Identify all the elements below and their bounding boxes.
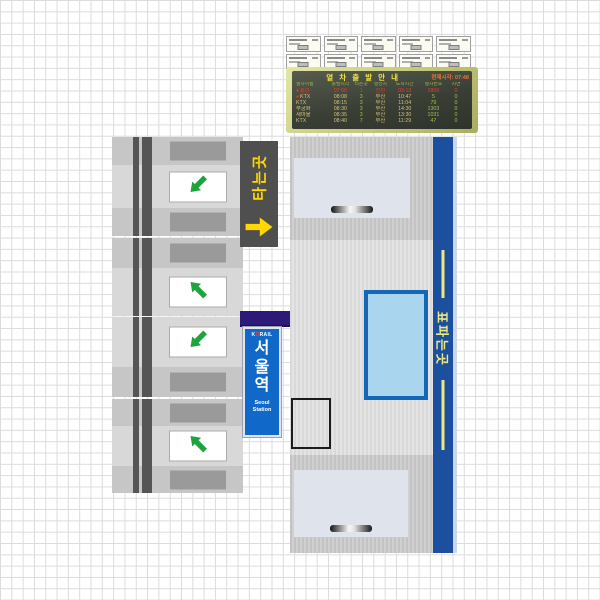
- banner-rule-top: [442, 250, 445, 298]
- right-arrow-icon: [244, 215, 274, 239]
- arrow-up-left-icon: [186, 278, 210, 307]
- outlined-booth: [291, 398, 331, 449]
- board-cell-name: KTX: [295, 118, 327, 124]
- ticket-office-window: [364, 290, 428, 400]
- gate-slot: [170, 470, 226, 489]
- station-name-label: 서울역: [252, 340, 272, 396]
- gate-slot: [170, 244, 226, 263]
- gate-rail-stripe: [142, 137, 152, 236]
- gate-lane-band: [112, 268, 243, 316]
- ticket-card-wall: [286, 36, 471, 69]
- gate-arrow-panel: [169, 327, 227, 358]
- kiosk-top: [294, 158, 410, 218]
- board-cell-train_no: 47: [418, 118, 449, 124]
- fare-gates: [112, 137, 243, 493]
- departure-board: 열 차 출 발 안 내 현재시각: 07:48 열차이름출발시각타는곳행선지도착…: [286, 67, 478, 133]
- boarding-sign: 타는곳: [240, 141, 278, 247]
- board-cell-dest: 부산: [369, 118, 392, 124]
- banner-text-wrap: 표파는곳: [433, 298, 453, 380]
- arrow-down-left-icon: [186, 172, 210, 201]
- departure-board-title: 열 차 출 발 안 내: [295, 72, 431, 83]
- arrow-up-left-icon: [186, 432, 210, 461]
- boarding-sign-label: 타는곳: [249, 153, 270, 200]
- station-name-english: Seoul Station: [249, 400, 275, 414]
- timetable-card: [399, 36, 434, 52]
- korail-rail: RAIL: [260, 332, 273, 338]
- kiosk-bottom: [294, 470, 408, 537]
- gate-rail-stripe: [133, 399, 139, 493]
- station-sign: KORAIL 서울역 Seoul Station: [243, 327, 281, 437]
- timetable-card: [286, 36, 321, 52]
- board-cell-delay: 0: [449, 118, 463, 124]
- departure-board-panel: 열 차 출 발 안 내 현재시각: 07:48 열차이름출발시각타는곳행선지도착…: [292, 71, 472, 129]
- fare-gate-unit: [112, 137, 243, 236]
- gate-slot-band: [112, 367, 243, 397]
- station-sign-awning: [240, 311, 290, 327]
- board-cell-depart: 08:40: [327, 118, 353, 124]
- gate-rail-stripe: [133, 137, 139, 236]
- gate-arrow-panel: [169, 171, 227, 202]
- ticket-banner: 표파는곳: [433, 137, 457, 553]
- ticket-banner-label: 표파는곳: [434, 311, 453, 367]
- departure-board-titlebar: 열 차 출 발 안 내 현재시각: 07:48: [295, 72, 469, 82]
- ticket-hall: 표파는곳: [290, 137, 457, 553]
- gate-rail-stripe: [133, 238, 139, 316]
- gate-slot-band: [112, 399, 243, 426]
- card-row: [286, 36, 471, 52]
- timetable-card: [324, 36, 359, 52]
- gate-slot: [170, 373, 226, 392]
- kiosk-handle: [331, 206, 373, 213]
- banner-rule-bottom: [442, 380, 445, 450]
- gate-slot: [170, 142, 226, 161]
- gate-slot: [170, 213, 226, 232]
- board-cell-arrive: 11:29: [392, 118, 418, 124]
- gate-slot-band: [112, 466, 243, 493]
- korail-logo: KORAIL: [252, 332, 273, 338]
- boarding-sign-text-wrap: 타는곳: [240, 141, 278, 213]
- departure-board-clock: 현재시각: 07:48: [431, 73, 469, 81]
- timetable-card: [361, 36, 396, 52]
- gate-arrow-panel: [169, 277, 227, 308]
- gate-lane-band: [112, 165, 243, 208]
- gate-slot-band: [112, 208, 243, 236]
- kiosk-handle: [330, 525, 372, 532]
- fare-gate-unit: [112, 317, 243, 397]
- fare-gate-unit: [112, 238, 243, 316]
- gate-lane-band: [112, 426, 243, 466]
- arrow-down-left-icon: [186, 328, 210, 357]
- gate-slot: [170, 403, 226, 422]
- gate-rail-stripe: [142, 238, 152, 316]
- gate-rail-stripe: [133, 317, 139, 397]
- board-rows: ●통근07:501천안09:1328000●KTX08:083부산10:4750…: [295, 88, 469, 124]
- board-train-row: KTX08:407부산11:29470: [295, 118, 469, 124]
- gate-rail-stripe: [142, 399, 152, 493]
- board-cell-platform: 7: [353, 118, 369, 124]
- timetable-card: [436, 36, 471, 52]
- gate-arrow-panel: [169, 431, 227, 462]
- fare-gate-unit: [112, 399, 243, 493]
- gate-rail-stripe: [142, 317, 152, 397]
- gate-lane-band: [112, 317, 243, 367]
- gate-slot-band: [112, 238, 243, 268]
- gate-slot-band: [112, 137, 243, 165]
